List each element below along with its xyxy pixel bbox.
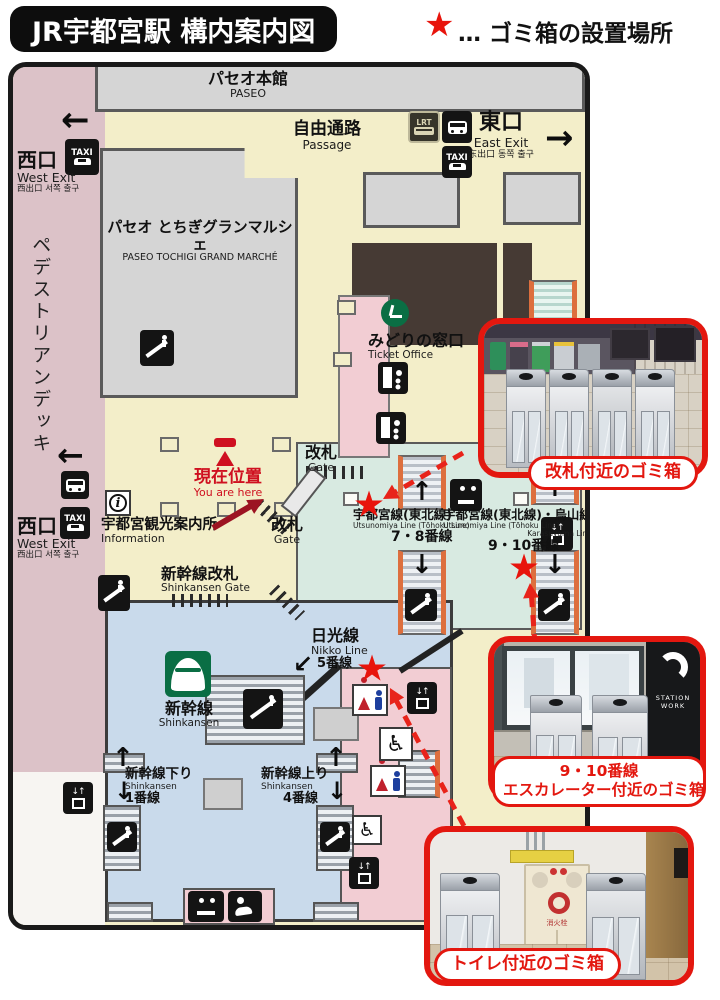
pillar [513, 492, 529, 506]
down-arrow-icon: ↓ [327, 779, 347, 803]
label-ticket-office: みどりの窓口Ticket Office [368, 332, 464, 362]
label-west-exit-lower: 西口West Exit西出口 서쪽 출구 [17, 515, 97, 561]
label-shinkansen-gate: 新幹線改札Shinkansen Gate [161, 566, 250, 595]
label-paseo-hall: パセオ本館PASEO [173, 70, 323, 100]
label-information: 宇都宮観光案内所Information [101, 517, 217, 546]
escalator-icon [140, 330, 174, 366]
baby-care-icon [228, 891, 262, 922]
label-shinkansen-down: 新幹線下りShinkansen1番線 [125, 767, 193, 807]
label-you-are-here: 現在位置You are here [173, 468, 283, 499]
pillar [217, 502, 236, 517]
photo-label-platform910: 9・10番線エスカレーター付近のゴミ箱 [492, 756, 706, 807]
label-gate-middle: 改札Gate [265, 516, 309, 546]
label-nikko-line: 日光線Nikko Line5番線 [311, 627, 368, 672]
midori-window-icon [381, 299, 409, 327]
toilet-icon [370, 765, 406, 797]
escalator-icon [107, 822, 137, 852]
information-icon: i [105, 490, 131, 516]
left-arrow-icon: ← [57, 439, 84, 471]
photo-label-gate: 改札付近のゴミ箱 [528, 456, 698, 490]
wheelchair-icon: ♿ [379, 727, 413, 761]
you-are-here-marker [214, 438, 236, 447]
elevator-icon: ↓↑ [349, 857, 379, 889]
label-east-exit: 東口East Exit东出口 동쪽 출구 [451, 111, 551, 160]
ticket-machine-icon [378, 362, 408, 394]
pillar [160, 437, 179, 452]
label-shinkansen-up: 新幹線上りShinkansen4番線 [261, 767, 329, 807]
left-arrow-icon: ← [61, 103, 90, 137]
label-shinkansen: 新幹線Shinkansen [151, 700, 227, 730]
label-line-910: 宇都宮線(東北線)・烏山線Utsunomiya Line (Tōhoku Lin… [443, 508, 590, 554]
page-title: JR宇都宮駅 構内案内図 [10, 6, 337, 52]
station-guide-poster: JR宇都宮駅 構内案内図 ★ … ゴミ箱の設置場所 [0, 0, 720, 1000]
bus-icon [61, 471, 89, 499]
shinkansen-icon [165, 651, 211, 697]
pillar [160, 502, 179, 517]
escalator-icon [243, 689, 283, 729]
elevator-icon: ↓↑ [63, 782, 93, 814]
down-arrow-icon: ↓ [544, 552, 566, 578]
escalator-icon [320, 822, 350, 852]
you-are-here-pointer [216, 451, 234, 466]
label-grand-marche: パセオ とちぎグランマルシェPASEO TOCHIGI GRAND MARCHÉ [105, 219, 295, 263]
stairs-bottom-left [107, 902, 153, 922]
wheelchair-icon: ♿ [352, 815, 382, 845]
gray-block-1 [363, 172, 460, 228]
pillar [337, 300, 356, 315]
ticket-machine-icon [376, 412, 406, 444]
label-passage: 自由通路Passage [281, 120, 373, 152]
elevator-icon: ↓↑ [407, 682, 437, 714]
stairs-bottom-right [313, 902, 359, 922]
paseo-hall-block [95, 67, 585, 112]
gray-block-2 [503, 172, 581, 225]
escalator-icon [405, 589, 437, 621]
washstand-icon [188, 891, 224, 922]
pillar [343, 492, 359, 506]
photo-label-toilet: トイレ付近のゴミ箱 [434, 948, 621, 982]
label-pedestrian-deck: ペデストリアンデッキ [29, 235, 50, 465]
lrt-icon: LRT [408, 111, 440, 143]
label-gate-upper: 改札Gate [299, 444, 343, 474]
shinkansen-gate-ticks [172, 594, 228, 607]
escalator-icon [98, 575, 130, 611]
pillar [272, 437, 291, 452]
legend-text: … ゴミ箱の設置場所 [458, 14, 673, 48]
toilet-icon [352, 684, 388, 716]
page-title-text: JR宇都宮駅 構内案内図 [32, 10, 315, 49]
pillar [333, 352, 352, 367]
grand-marche-block [100, 148, 298, 398]
up-arrow-icon: ↑ [411, 479, 433, 505]
pillar [203, 778, 243, 810]
photo-gate-bins [478, 318, 708, 478]
legend-star-icon: ★ [424, 8, 454, 42]
down-arrow-icon: ↓ [411, 552, 433, 578]
escalator-icon [538, 589, 570, 621]
label-west-exit-upper: 西口West Exit西出口 서쪽 출구 [17, 149, 97, 195]
